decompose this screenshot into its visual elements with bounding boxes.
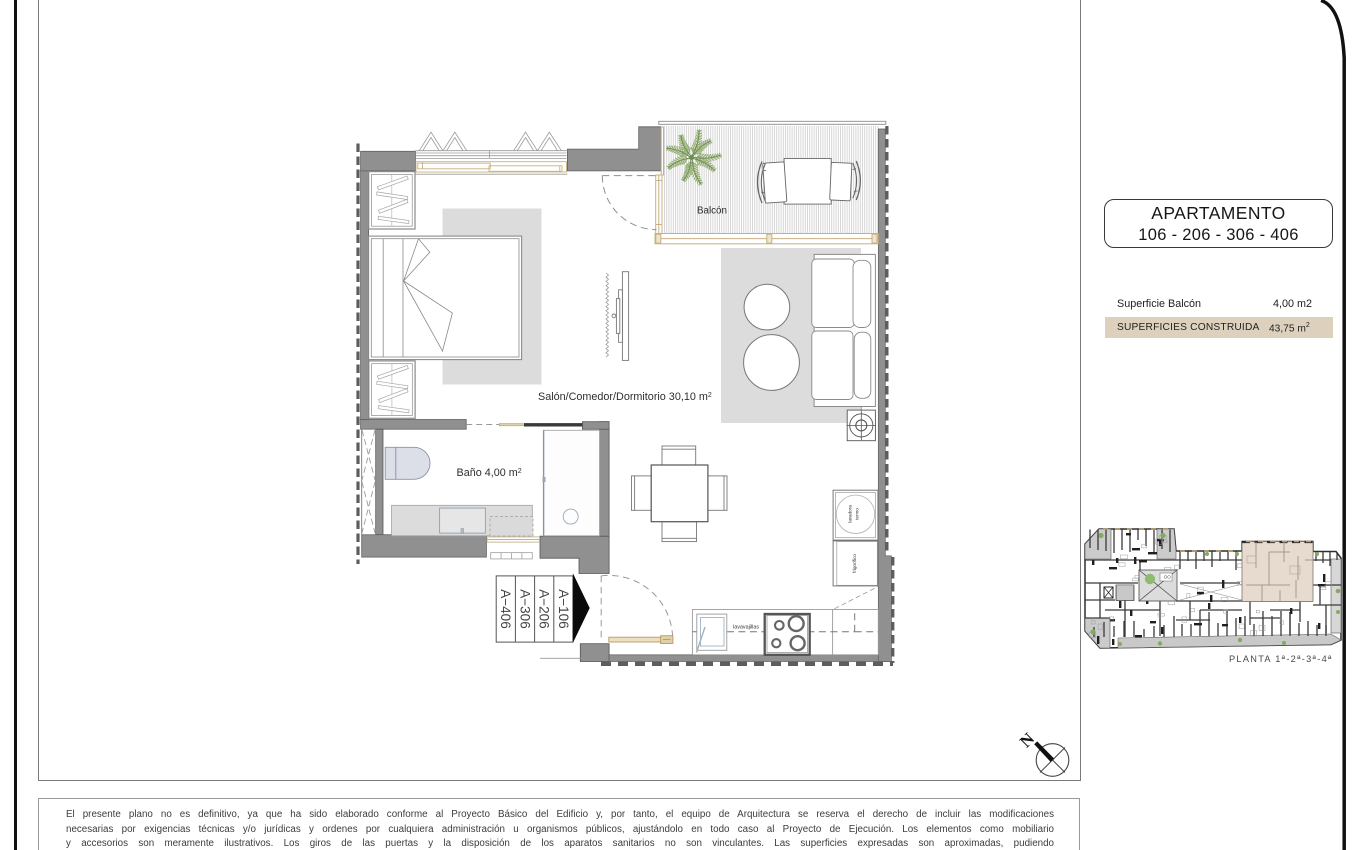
svg-text:A−306: A−306 — [517, 589, 532, 628]
svg-text:A−206: A−206 — [537, 589, 552, 628]
svg-text:termo: termo — [855, 508, 860, 520]
svg-text:A−106: A−106 — [556, 589, 571, 628]
svg-text:frigorífico: frigorífico — [852, 554, 857, 573]
svg-text:A−406: A−406 — [498, 589, 513, 628]
svg-text:Balcón: Balcón — [697, 206, 727, 217]
svg-text:N: N — [1016, 729, 1039, 752]
svg-text:lavadora: lavadora — [848, 505, 853, 523]
svg-text:lavavajillas: lavavajillas — [733, 625, 759, 631]
svg-text:Salón/Comedor/Dormitorio 30,1: Salón/Comedor/Dormitorio 30,10 m2 — [538, 391, 712, 403]
svg-text:Baño 4,00 m2: Baño 4,00 m2 — [457, 467, 522, 479]
